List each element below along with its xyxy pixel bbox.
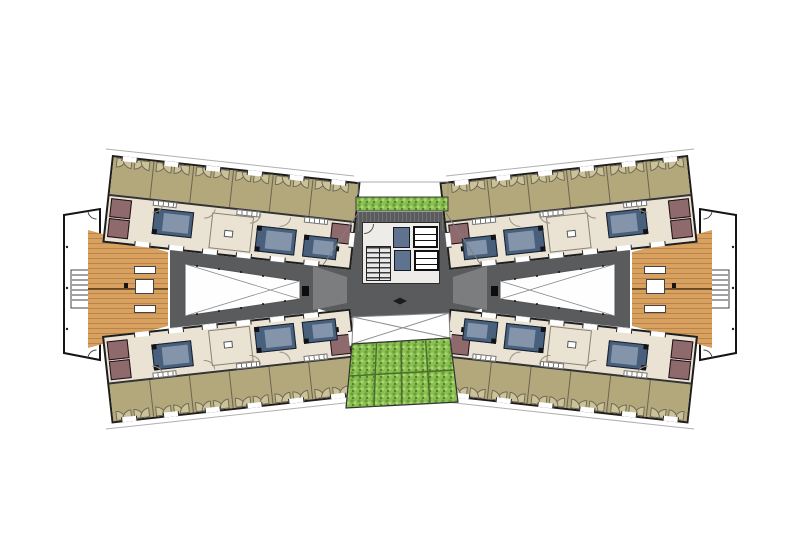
deck-mark bbox=[672, 283, 676, 288]
window bbox=[515, 316, 531, 323]
courtyard-void bbox=[500, 264, 615, 316]
deck-table bbox=[644, 266, 666, 274]
window bbox=[481, 312, 497, 319]
nightstand bbox=[540, 246, 546, 252]
bed-mattress bbox=[611, 345, 639, 366]
deck-table bbox=[644, 305, 666, 313]
nightstand bbox=[541, 327, 547, 333]
nightstand bbox=[538, 225, 544, 231]
door-arc bbox=[509, 216, 521, 228]
door-arc bbox=[364, 224, 374, 234]
corridor-ramp-patch bbox=[453, 266, 487, 310]
bed bbox=[503, 225, 546, 255]
double-door-arc bbox=[469, 389, 486, 399]
bed bbox=[462, 235, 498, 261]
nightstand bbox=[491, 338, 497, 344]
wardrobe-block bbox=[668, 198, 691, 219]
wardrobe-block bbox=[668, 359, 691, 380]
deck-joint-line bbox=[632, 288, 712, 290]
terrace-stair bbox=[710, 270, 729, 308]
nightstand bbox=[538, 348, 544, 354]
bathroom-fixture-row bbox=[472, 216, 497, 225]
bed bbox=[606, 208, 649, 238]
nightstand bbox=[491, 235, 497, 241]
wardrobe-block bbox=[670, 218, 693, 239]
corridor-duct-mark bbox=[491, 286, 498, 296]
nightstand bbox=[643, 344, 649, 350]
bed-mattress bbox=[507, 230, 535, 251]
elevator-car bbox=[393, 227, 410, 248]
floor-plan-canvas bbox=[0, 0, 800, 533]
bed bbox=[503, 323, 546, 353]
deck-table bbox=[646, 279, 665, 294]
elevator-shaft bbox=[414, 250, 439, 271]
bed bbox=[462, 318, 498, 344]
window bbox=[616, 327, 632, 334]
bed-mattress bbox=[508, 327, 536, 348]
table bbox=[567, 230, 577, 238]
double-door-arc bbox=[469, 179, 486, 189]
nightstand bbox=[643, 229, 649, 235]
bed-mattress bbox=[466, 240, 487, 256]
stair-flight bbox=[366, 246, 391, 281]
bed-mattress bbox=[610, 213, 638, 234]
elevator-stair-core bbox=[362, 222, 440, 284]
elevator-shaft bbox=[413, 226, 438, 248]
table bbox=[567, 341, 577, 349]
bed-mattress bbox=[467, 323, 488, 339]
door-arc bbox=[539, 354, 551, 366]
door-arc bbox=[509, 350, 521, 362]
window bbox=[650, 331, 666, 338]
door-arc bbox=[539, 213, 551, 225]
elevator-car bbox=[394, 250, 411, 271]
wardrobe-block bbox=[670, 339, 693, 360]
